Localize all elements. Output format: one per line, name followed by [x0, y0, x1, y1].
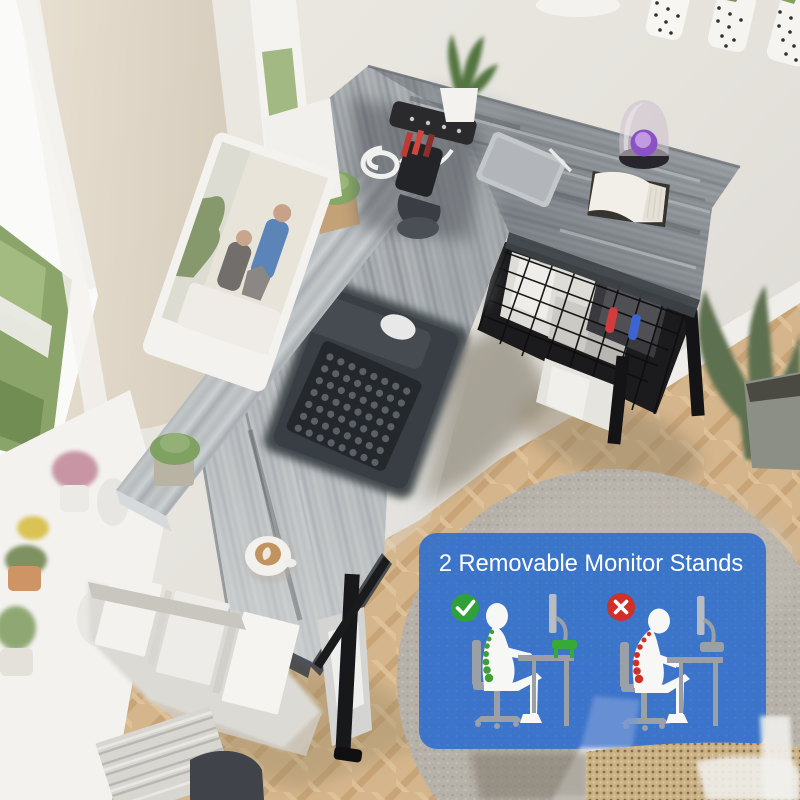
- svg-text:2 Removable Monitor Stands: 2 Removable Monitor Stands: [439, 551, 743, 577]
